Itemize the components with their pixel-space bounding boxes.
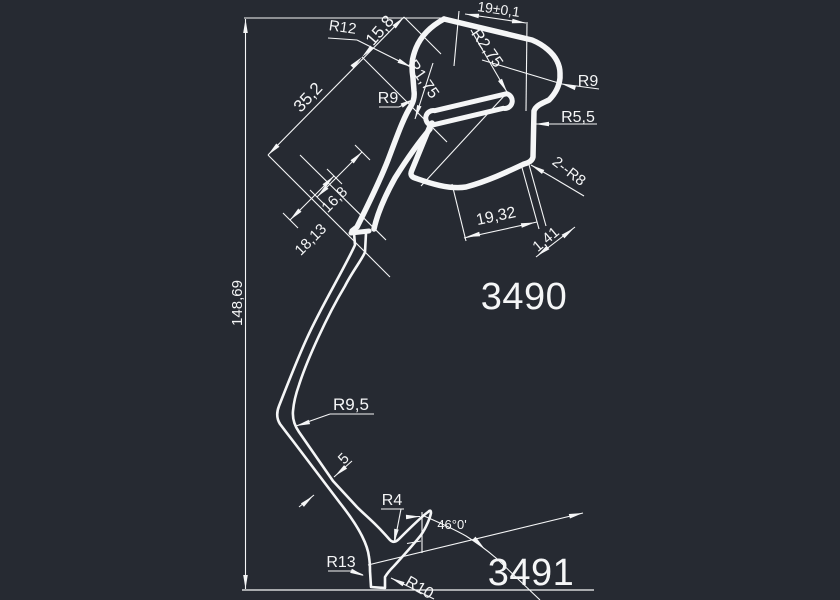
svg-text:R4: R4 bbox=[382, 492, 403, 509]
svg-text:3490: 3490 bbox=[481, 276, 568, 318]
svg-text:46°0': 46°0' bbox=[437, 517, 466, 532]
svg-text:R9: R9 bbox=[378, 90, 399, 107]
svg-text:R9,5: R9,5 bbox=[333, 395, 369, 414]
svg-text:R5,5: R5,5 bbox=[561, 109, 595, 126]
svg-text:R9: R9 bbox=[578, 73, 599, 90]
svg-text:R13: R13 bbox=[326, 554, 355, 571]
svg-text:3491: 3491 bbox=[488, 552, 575, 594]
svg-text:148,69: 148,69 bbox=[229, 280, 246, 326]
